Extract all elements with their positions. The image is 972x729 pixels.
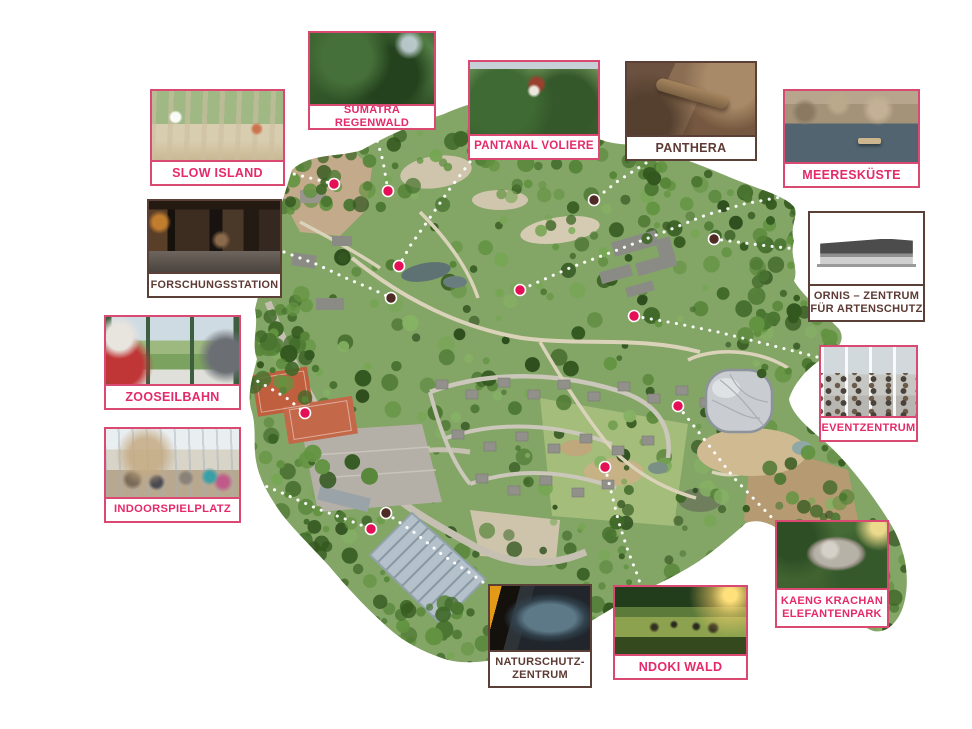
callout-label: MEERESKÜSTE	[785, 164, 918, 186]
thumbnail-indoorspielplatz	[106, 429, 239, 499]
thumbnail-naturschutz-zentrum	[490, 586, 590, 652]
map-dot-meereskueste	[515, 285, 526, 296]
thumbnail-pantanal-voliere	[470, 62, 598, 136]
callout-label: EVENTZENTRUM	[821, 418, 916, 440]
callout-label: KAENG KRACHAN ELEFANTENPARK	[777, 590, 887, 626]
map-dot-forschungsstation	[386, 293, 397, 304]
callout-panthera: PANTHERA	[625, 61, 757, 161]
map-dot-pantanal-voliere	[394, 261, 405, 272]
thumbnail-ornis-zentrum	[810, 213, 923, 286]
callout-label: FORSCHUNGSSTATION	[149, 274, 280, 296]
callout-ndoki-wald: NDOKI WALD	[613, 585, 748, 680]
callout-label: ZOOSEILBAHN	[106, 386, 239, 408]
callout-pantanal-voliere: PANTANAL VOLIERE	[468, 60, 600, 160]
callout-sumatra-regenwald: SUMATRA REGENWALD	[308, 31, 436, 130]
thumbnail-meereskueste	[785, 91, 918, 164]
callout-kaeng-krachan-elefantenpark: KAENG KRACHAN ELEFANTENPARK	[775, 520, 889, 628]
map-dot-indoorspielplatz	[366, 524, 377, 535]
callout-slow-island: SLOW ISLAND	[150, 89, 285, 186]
thumbnail-panthera	[627, 63, 755, 137]
callout-label: SUMATRA REGENWALD	[310, 106, 434, 128]
callout-eventzentrum: EVENTZENTRUM	[819, 345, 918, 442]
callout-label: INDOORSPIELPLATZ	[106, 499, 239, 521]
thumbnail-ndoki-wald	[615, 587, 746, 656]
callout-naturschutz-zentrum: NATURSCHUTZ- ZENTRUM	[488, 584, 592, 688]
callout-label: SLOW ISLAND	[152, 162, 283, 184]
map-dot-ndoki-wald	[600, 462, 611, 473]
map-dot-ornis	[709, 234, 720, 245]
map-dot-sumatra-regenwald	[383, 186, 394, 197]
callout-ornis-zentrum: ORNIS – ZENTRUM FÜR ARTENSCHUTZ	[808, 211, 925, 322]
callout-label: PANTANAL VOLIERE	[470, 136, 598, 158]
thumbnail-sumatra-regenwald	[310, 33, 434, 106]
map-dot-slow-island	[329, 179, 340, 190]
thumbnail-zooseilbahn	[106, 317, 239, 386]
zoo-map-infographic: SLOW ISLAND SUMATRA REGENWALD PANTANAL V…	[0, 0, 972, 729]
callout-label: NDOKI WALD	[615, 656, 746, 678]
map-dot-panthera	[589, 195, 600, 206]
callout-indoorspielplatz: INDOORSPIELPLATZ	[104, 427, 241, 523]
callout-zooseilbahn: ZOOSEILBAHN	[104, 315, 241, 410]
map-dot-eventzentrum	[629, 311, 640, 322]
callout-forschungsstation: FORSCHUNGSSTATION	[147, 199, 282, 298]
callout-label: NATURSCHUTZ- ZENTRUM	[490, 652, 590, 686]
callout-label: ORNIS – ZENTRUM FÜR ARTENSCHUTZ	[810, 286, 923, 320]
thumbnail-eventzentrum	[821, 347, 916, 418]
callout-label: PANTHERA	[627, 137, 755, 159]
map-dot-kaeng-krachan	[673, 401, 684, 412]
thumbnail-forschungsstation	[149, 201, 280, 274]
callout-meereskueste: MEERESKÜSTE	[783, 89, 920, 188]
map-dot-zooseilbahn	[300, 408, 311, 419]
map-dot-naturschutz-zentrum	[381, 508, 392, 519]
thumbnail-slow-island	[152, 91, 283, 162]
thumbnail-kaeng-krachan-elefantenpark	[777, 522, 887, 590]
